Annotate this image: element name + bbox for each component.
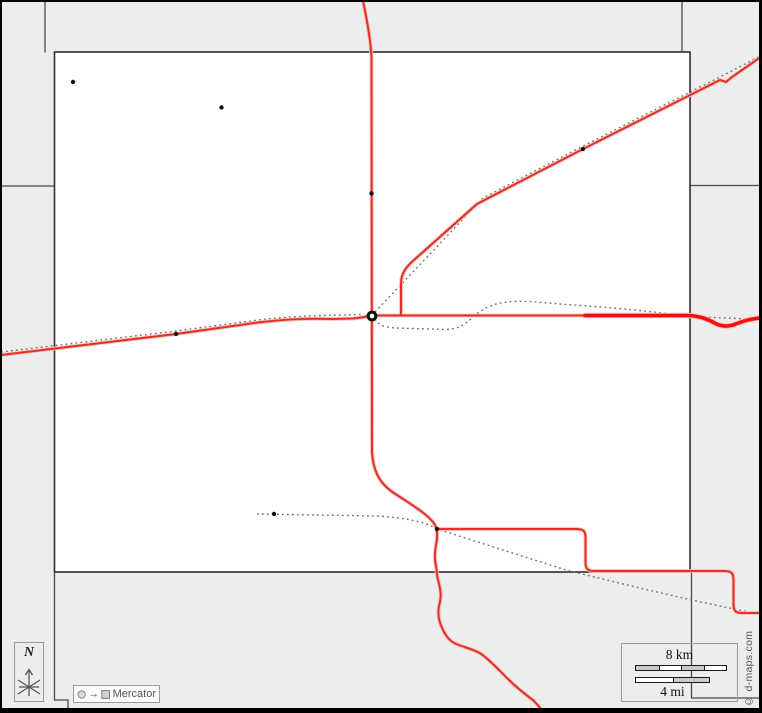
credit-text: © d-maps.com xyxy=(741,626,757,707)
scale-segment xyxy=(673,678,710,682)
scale-km-label: 8 km xyxy=(622,647,737,663)
arrow-right-icon: → xyxy=(88,689,99,700)
image-frame xyxy=(0,0,762,2)
scale-segment xyxy=(659,666,682,670)
town-dot xyxy=(174,332,178,336)
scale-mi-label: 4 mi xyxy=(636,684,709,700)
scale-bar-km xyxy=(635,665,727,671)
projection-label: Mercator xyxy=(113,689,156,700)
town-dot xyxy=(272,512,276,516)
county-seat-center xyxy=(370,314,375,319)
town-dot xyxy=(71,80,75,84)
map-svg xyxy=(0,0,762,713)
image-frame xyxy=(0,0,2,713)
town-dot xyxy=(435,527,439,531)
globe-circle-icon xyxy=(77,689,86,700)
town-dot xyxy=(581,147,585,151)
town-dot xyxy=(219,105,223,109)
compass-icon xyxy=(15,661,43,699)
scale-segment xyxy=(636,666,659,670)
scale-segment xyxy=(636,678,673,682)
scale-bar-mi xyxy=(635,677,710,683)
town-dot xyxy=(369,191,373,195)
scale-segment xyxy=(681,666,704,670)
image-frame xyxy=(0,708,762,713)
map-page: N → Mercator 8 km xyxy=(0,0,762,713)
scale-bar: 8 km 4 mi xyxy=(621,643,738,702)
projection-badge: → Mercator xyxy=(73,685,160,703)
scale-segment xyxy=(704,666,727,670)
north-label: N xyxy=(24,645,34,661)
square-icon xyxy=(101,689,110,700)
north-arrow-box: N xyxy=(14,642,44,702)
